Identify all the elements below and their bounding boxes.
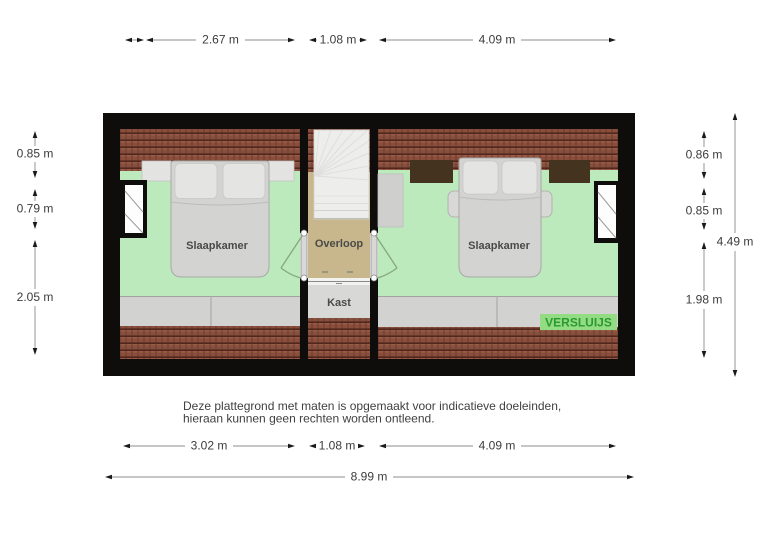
svg-text:2.05 m: 2.05 m xyxy=(17,290,54,304)
svg-text:0.86 m: 0.86 m xyxy=(686,148,723,162)
svg-text:8.99 m: 8.99 m xyxy=(351,470,388,484)
svg-text:VERSLUIJS: VERSLUIJS xyxy=(545,316,612,330)
svg-text:Slaapkamer: Slaapkamer xyxy=(186,240,248,252)
svg-text:1.08 m: 1.08 m xyxy=(320,33,357,47)
svg-text:1.98 m: 1.98 m xyxy=(686,293,723,307)
svg-text:0.85 m: 0.85 m xyxy=(686,204,723,218)
svg-text:0.85 m: 0.85 m xyxy=(17,147,54,161)
svg-text:Overloop: Overloop xyxy=(315,238,364,250)
svg-text:hieraan kunnen geen rechten wo: hieraan kunnen geen rechten worden ontle… xyxy=(183,412,435,426)
svg-text:Kast: Kast xyxy=(327,297,351,309)
svg-text:4.09 m: 4.09 m xyxy=(479,439,516,453)
svg-text:1.08 m: 1.08 m xyxy=(319,439,356,453)
svg-text:Slaapkamer: Slaapkamer xyxy=(468,240,530,252)
svg-text:2.67 m: 2.67 m xyxy=(202,33,239,47)
svg-text:4.09 m: 4.09 m xyxy=(479,33,516,47)
svg-text:0.79 m: 0.79 m xyxy=(17,202,54,216)
svg-text:3.02 m: 3.02 m xyxy=(191,439,228,453)
svg-text:4.49 m: 4.49 m xyxy=(717,235,754,249)
